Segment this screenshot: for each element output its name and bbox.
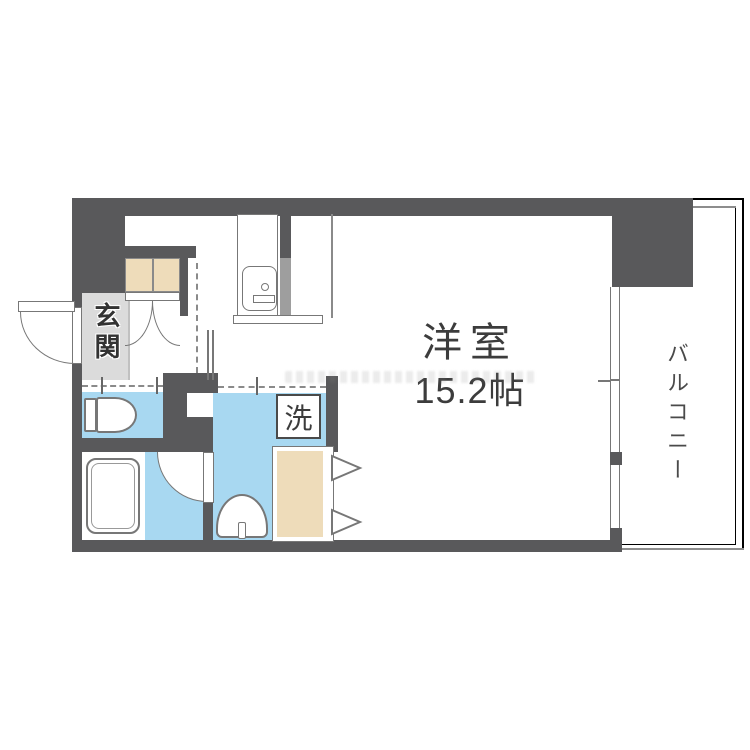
wall-top <box>72 198 693 216</box>
balcony-label: バルコニー <box>660 342 692 487</box>
balcony-window-upper <box>610 287 620 452</box>
kitchen-tap-bar-icon <box>253 295 275 303</box>
window-handle-tick <box>598 380 610 382</box>
main-room-label: 洋室 15.2帖 <box>360 318 580 413</box>
wall-washroom-left-col <box>163 393 187 452</box>
pipe-space <box>280 258 291 316</box>
balcony-window-lower <box>610 465 620 528</box>
toilet-partition-dash <box>82 385 163 387</box>
wall-washroom-right <box>326 376 338 452</box>
closet-divider <box>152 259 154 291</box>
kitchen-area-dashed-boundary <box>196 263 198 373</box>
kitchen-sink-icon <box>242 266 277 311</box>
closet-door-arc-left <box>125 301 153 346</box>
toilet-partition-tick <box>101 377 103 394</box>
watermark <box>285 371 535 383</box>
wall-hall-washroom <box>163 373 218 393</box>
floor-plan: 洗 玄関 洋室 15.2帖 バルコニー <box>0 0 750 750</box>
balcony-inner-top <box>693 206 736 208</box>
washroom-entry-dash <box>218 386 326 388</box>
wall-kitchen-stub <box>280 216 291 258</box>
wall-bottom <box>72 540 622 552</box>
toilet-partition-tick-2 <box>156 377 158 394</box>
wall-left-lower <box>72 364 82 552</box>
wall-window-mullion <box>610 452 622 465</box>
entrance-label: 玄関 <box>88 302 125 378</box>
washroom-entry-tick <box>256 377 258 395</box>
wall-closet-side <box>180 258 188 316</box>
wall-right-bottom <box>610 528 622 552</box>
bathroom-door-leaf <box>203 452 214 503</box>
entrance-door-arc <box>20 312 75 364</box>
wall-toilet-bath <box>80 438 163 452</box>
washbasin-tap-icon <box>238 522 246 539</box>
balcony-outer-bottom <box>622 548 744 550</box>
washing-machine-label: 洗 <box>284 397 312 437</box>
hall-partition-line-2 <box>212 330 214 380</box>
storage-fill <box>277 451 323 537</box>
window-sash-line <box>610 379 620 381</box>
washing-machine-pan: 洗 <box>276 394 321 439</box>
kitchen-faucet-icon <box>261 283 269 291</box>
bathtub-inner-line <box>91 463 135 529</box>
wall-bathdoor-stub <box>203 502 213 540</box>
closet-door-track <box>125 292 180 301</box>
entrance-door-leaf <box>18 301 75 312</box>
wall-closet-back <box>122 246 196 258</box>
main-room-name: 洋室 <box>360 318 580 368</box>
wall-block-top-left <box>72 198 125 293</box>
kitchen-counter <box>233 315 323 324</box>
wall-washroom-left-low <box>187 417 213 452</box>
kitchen-partition-line <box>331 214 333 318</box>
closet-door-arc-right <box>152 301 180 346</box>
storage-bifold-door-icon <box>331 452 363 538</box>
hall-partition-line-1 <box>207 330 209 380</box>
